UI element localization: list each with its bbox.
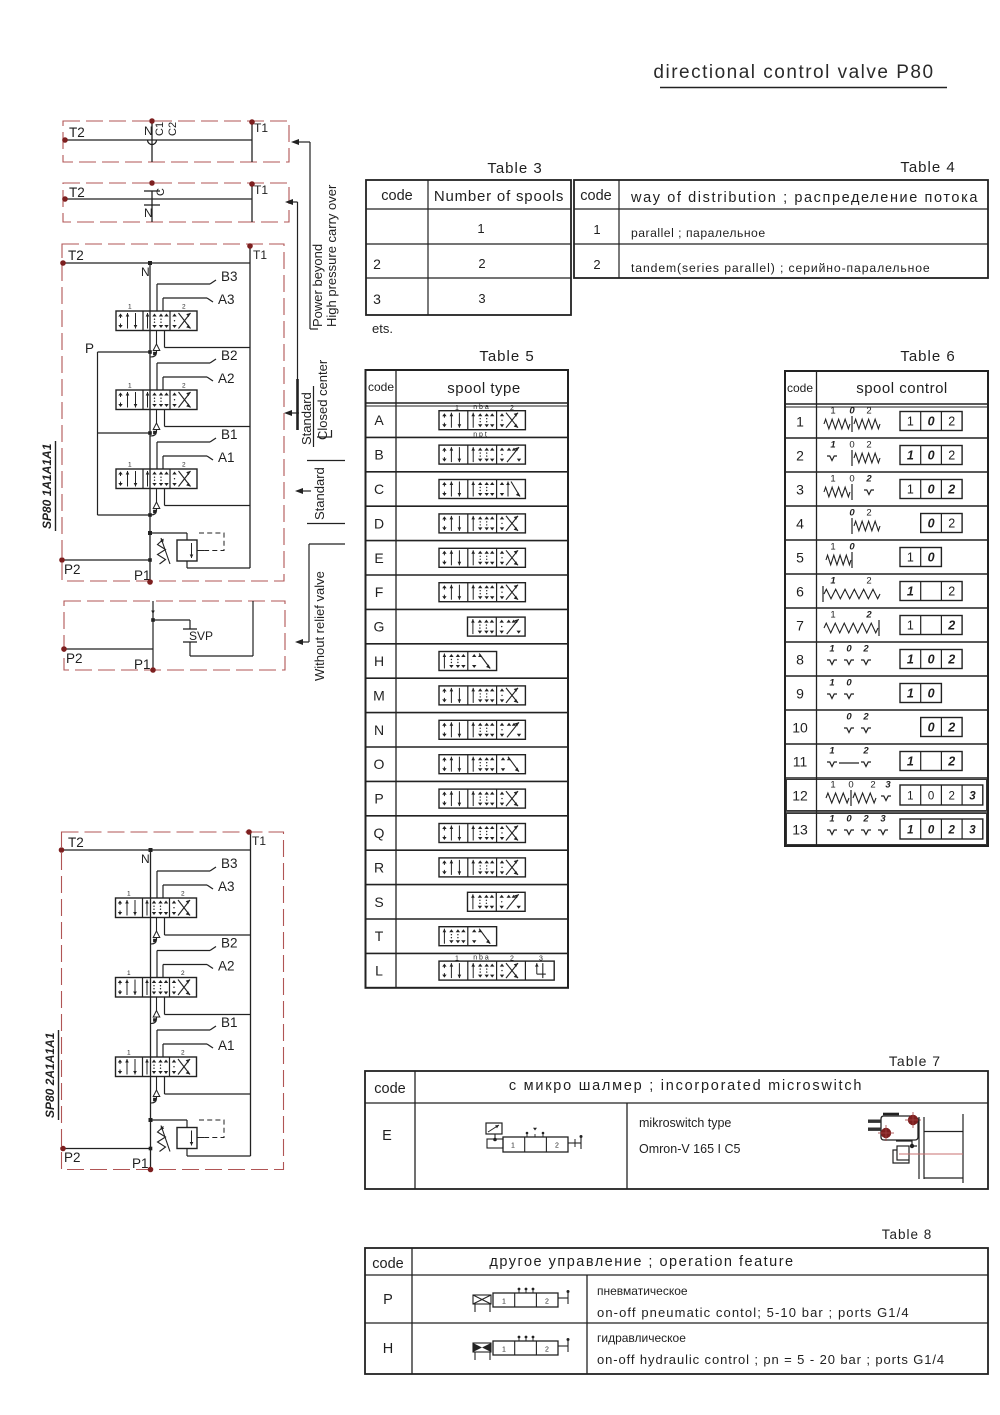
svg-text:H: H [383, 1341, 393, 1357]
svg-text:1: 1 [829, 678, 834, 689]
svg-text:spool type: spool type [447, 380, 520, 397]
svg-text:1: 1 [830, 542, 835, 553]
svg-text:2: 2 [510, 405, 514, 412]
svg-text:4: 4 [796, 516, 804, 532]
svg-text:1: 1 [128, 383, 132, 390]
svg-text:C: C [374, 481, 384, 497]
svg-text:S: S [374, 894, 383, 910]
svg-text:1: 1 [907, 449, 914, 463]
svg-text:1: 1 [593, 222, 600, 237]
svg-text:A1: A1 [218, 450, 235, 465]
svg-text:A2: A2 [218, 371, 235, 386]
svg-text:1: 1 [477, 221, 484, 236]
svg-text:2: 2 [949, 791, 955, 803]
svg-text:B1: B1 [221, 427, 238, 442]
svg-text:0: 0 [849, 474, 854, 485]
svg-text:code: code [381, 188, 412, 204]
svg-text:A1: A1 [218, 1038, 235, 1053]
svg-text:3: 3 [539, 955, 543, 962]
svg-text:1: 1 [128, 304, 132, 311]
svg-text:гидравлическое: гидравлическое [597, 1331, 686, 1345]
svg-text:1: 1 [907, 415, 914, 429]
svg-text:T1: T1 [254, 183, 268, 197]
svg-text:Table 4: Table 4 [900, 159, 955, 176]
svg-text:P2: P2 [64, 562, 81, 577]
svg-text:L: L [375, 963, 383, 979]
svg-text:2: 2 [862, 746, 869, 757]
svg-text:A: A [374, 412, 384, 428]
svg-text:T: T [375, 928, 384, 944]
svg-text:2: 2 [948, 517, 955, 531]
svg-text:B: B [374, 447, 383, 463]
svg-text:1: 1 [830, 610, 835, 621]
svg-text:0: 0 [928, 415, 935, 429]
svg-text:Table 8: Table 8 [882, 1227, 933, 1242]
svg-text:G: G [374, 619, 385, 635]
svg-text:1: 1 [907, 551, 914, 565]
svg-text:11: 11 [793, 754, 808, 770]
svg-text:0: 0 [928, 791, 934, 803]
svg-text:R: R [374, 859, 384, 875]
svg-text:0: 0 [928, 653, 935, 667]
svg-text:Power beyond: Power beyond [310, 244, 325, 327]
svg-text:2: 2 [948, 449, 955, 463]
svg-text:2: 2 [545, 1299, 549, 1306]
svg-text:code: code [372, 1256, 403, 1272]
svg-text:9: 9 [796, 686, 804, 702]
svg-text:D: D [374, 515, 384, 531]
svg-text:1: 1 [502, 1299, 506, 1306]
svg-text:2: 2 [947, 721, 955, 735]
svg-text:1: 1 [907, 585, 914, 599]
svg-text:1: 1 [829, 814, 834, 825]
svg-text:P: P [383, 1292, 393, 1308]
svg-text:on-off hydraulic control ; pn: on-off hydraulic control ; pn = 5 - 20 b… [597, 1352, 945, 1367]
svg-text:SP80 1A1A1A1: SP80 1A1A1A1 [40, 443, 54, 529]
svg-text:6: 6 [796, 584, 804, 600]
svg-text:P: P [374, 791, 383, 807]
svg-text:2: 2 [870, 780, 875, 791]
svg-text:1: 1 [128, 462, 132, 469]
svg-text:0: 0 [928, 483, 935, 497]
svg-text:2: 2 [948, 415, 955, 429]
svg-text:tandem(series parallel) ; сер: tandem(series parallel) ; серийно-парале… [631, 261, 931, 275]
svg-text:Closed center: Closed center [315, 359, 330, 440]
svg-text:1: 1 [830, 440, 835, 451]
svg-text:A3: A3 [218, 879, 235, 894]
svg-text:Without relief valve: Without relief valve [312, 571, 327, 681]
svg-text:1: 1 [511, 1143, 515, 1150]
svg-text:code: code [374, 1081, 405, 1097]
svg-text:2: 2 [865, 474, 872, 485]
svg-text:P2: P2 [66, 651, 83, 666]
svg-text:B3: B3 [221, 856, 238, 871]
svg-text:Standard: Standard [312, 467, 327, 520]
svg-text:on-off pneumatic contol; 5-10: on-off pneumatic contol; 5-10 bar ; port… [597, 1305, 910, 1320]
svg-text:code: code [580, 188, 611, 204]
svg-text:2: 2 [866, 576, 871, 587]
svg-text:2: 2 [866, 508, 871, 519]
svg-text:0: 0 [928, 517, 935, 531]
svg-text:0: 0 [928, 449, 935, 463]
svg-text:2: 2 [865, 610, 872, 621]
svg-text:3: 3 [796, 482, 804, 498]
svg-text:2: 2 [182, 383, 186, 390]
svg-text:ets.: ets. [372, 321, 393, 336]
svg-text:2: 2 [862, 814, 869, 825]
svg-text:parallel ; паралельное: parallel ; паралельное [631, 226, 766, 240]
svg-text:directional control valve P80: directional control valve P80 [653, 62, 934, 83]
svg-text:High pressure carry over: High pressure carry over [324, 184, 339, 327]
svg-text:T2: T2 [69, 125, 85, 140]
svg-text:B2: B2 [221, 936, 238, 951]
svg-text:0: 0 [848, 780, 853, 791]
svg-text:Table 5: Table 5 [479, 348, 534, 365]
svg-text:C: C [155, 188, 167, 196]
svg-text:spool control: spool control [856, 380, 948, 397]
svg-text:8: 8 [796, 652, 804, 668]
svg-text:H: H [374, 653, 384, 669]
svg-text:N: N [141, 265, 150, 279]
svg-text:1: 1 [830, 474, 835, 485]
svg-text:P1: P1 [132, 1156, 149, 1171]
svg-text:1: 1 [830, 406, 835, 417]
svg-text:T1: T1 [254, 121, 268, 135]
svg-text:3: 3 [969, 825, 976, 837]
svg-text:0: 0 [849, 440, 854, 451]
svg-text:с микро шалмер ; incorporated: с микро шалмер ; incorporated microswitc… [509, 1078, 863, 1094]
svg-text:Table 6: Table 6 [900, 348, 955, 365]
svg-text:0: 0 [849, 406, 855, 417]
svg-text:n b a: n b a [473, 404, 489, 411]
svg-text:1: 1 [502, 1347, 506, 1354]
svg-text:Number of spools: Number of spools [434, 188, 564, 205]
svg-text:B3: B3 [221, 269, 238, 284]
svg-text:O: O [374, 756, 385, 772]
svg-text:1: 1 [830, 576, 835, 587]
svg-text:1: 1 [829, 746, 834, 757]
svg-text:N: N [141, 852, 150, 866]
svg-text:1: 1 [907, 687, 914, 701]
svg-text:2: 2 [862, 712, 869, 723]
svg-text:1: 1 [829, 644, 834, 655]
svg-text:SVP: SVP [189, 629, 213, 643]
svg-text:другое управление ; operation: другое управление ; operation feature [489, 1254, 794, 1270]
svg-text:2: 2 [181, 891, 185, 898]
svg-text:2: 2 [796, 448, 804, 464]
svg-text:0: 0 [846, 644, 852, 655]
svg-text:1: 1 [907, 825, 913, 837]
svg-text:0: 0 [928, 687, 935, 701]
svg-text:2: 2 [866, 406, 871, 417]
svg-text:1: 1 [907, 483, 914, 497]
svg-text:2: 2 [555, 1143, 559, 1150]
svg-text:P1: P1 [134, 657, 151, 672]
svg-text:2: 2 [510, 955, 514, 962]
svg-text:N: N [144, 206, 153, 220]
svg-text:13: 13 [792, 822, 808, 838]
svg-text:A2: A2 [218, 959, 235, 974]
svg-text:пневматическое: пневматическое [597, 1284, 688, 1298]
svg-text:T2: T2 [68, 835, 84, 850]
svg-text:0: 0 [849, 508, 855, 519]
svg-text:T1: T1 [253, 248, 267, 262]
svg-text:F: F [375, 584, 384, 600]
svg-text:T2: T2 [68, 248, 84, 263]
svg-text:2: 2 [478, 256, 485, 271]
svg-text:0: 0 [928, 551, 935, 565]
svg-text:2: 2 [862, 644, 869, 655]
svg-text:E: E [382, 1128, 392, 1144]
svg-text:Table 3: Table 3 [487, 160, 542, 177]
svg-text:2: 2 [866, 440, 871, 451]
svg-text:10: 10 [792, 720, 808, 736]
svg-text:1: 1 [907, 755, 914, 769]
svg-text:2: 2 [545, 1347, 549, 1354]
svg-text:1: 1 [907, 791, 913, 803]
svg-text:1: 1 [907, 619, 914, 633]
svg-text:3: 3 [373, 291, 381, 307]
svg-text:mikroswitch type: mikroswitch type [639, 1116, 731, 1130]
svg-text:1: 1 [127, 1050, 131, 1057]
svg-text:0: 0 [846, 678, 852, 689]
svg-text:2: 2 [947, 653, 955, 667]
svg-text:3: 3 [885, 780, 891, 791]
svg-text:2: 2 [182, 462, 186, 469]
svg-text:1: 1 [907, 653, 914, 667]
svg-text:N: N [144, 124, 153, 138]
svg-text:P2: P2 [64, 1150, 81, 1165]
svg-text:1: 1 [455, 955, 459, 962]
svg-text:1: 1 [796, 414, 804, 430]
svg-text:1: 1 [127, 970, 131, 977]
svg-text:5: 5 [796, 550, 804, 566]
svg-text:2: 2 [947, 755, 955, 769]
svg-text:SP80 2A1A1A1: SP80 2A1A1A1 [43, 1032, 57, 1118]
svg-text:2: 2 [182, 304, 186, 311]
svg-text:T2: T2 [69, 185, 85, 200]
svg-text:C1: C1 [154, 122, 166, 136]
svg-text:B1: B1 [221, 1015, 238, 1030]
svg-text:Standard: Standard [299, 392, 314, 445]
svg-text:2: 2 [947, 619, 955, 633]
svg-text:2: 2 [947, 483, 955, 497]
svg-text:2: 2 [593, 257, 600, 272]
svg-text:0: 0 [846, 814, 852, 825]
svg-text:0: 0 [928, 721, 935, 735]
svg-text:B2: B2 [221, 348, 238, 363]
svg-text:P: P [85, 341, 94, 356]
svg-text:2: 2 [948, 585, 955, 599]
svg-text:3: 3 [969, 791, 976, 803]
svg-text:3: 3 [478, 291, 485, 306]
svg-text:T1: T1 [252, 834, 266, 848]
svg-text:0: 0 [846, 712, 852, 723]
svg-text:code: code [368, 380, 394, 394]
svg-text:E: E [374, 550, 383, 566]
svg-text:2: 2 [181, 1050, 185, 1057]
svg-text:2: 2 [373, 256, 381, 272]
svg-text:Omron-V 165 I C5: Omron-V 165 I C5 [639, 1142, 740, 1156]
svg-text:code: code [787, 381, 813, 395]
svg-text:2: 2 [948, 825, 956, 837]
svg-text:n b a: n b a [473, 954, 489, 961]
svg-text:1: 1 [830, 780, 835, 791]
svg-text:0: 0 [849, 542, 855, 553]
svg-text:M: M [373, 687, 385, 703]
svg-text:C2: C2 [167, 122, 179, 136]
svg-text:12: 12 [792, 788, 808, 804]
svg-text:Table 7: Table 7 [889, 1053, 941, 1069]
svg-text:way of distribution ; распред: way of distribution ; распределение пото… [630, 190, 979, 206]
svg-text:Q: Q [374, 825, 385, 841]
svg-text:7: 7 [796, 618, 804, 634]
svg-text:N: N [374, 722, 384, 738]
svg-text:0: 0 [928, 825, 935, 837]
svg-text:3: 3 [880, 814, 886, 825]
svg-text:1: 1 [455, 405, 459, 412]
svg-text:1: 1 [127, 891, 131, 898]
svg-text:A3: A3 [218, 292, 235, 307]
svg-text:2: 2 [181, 970, 185, 977]
